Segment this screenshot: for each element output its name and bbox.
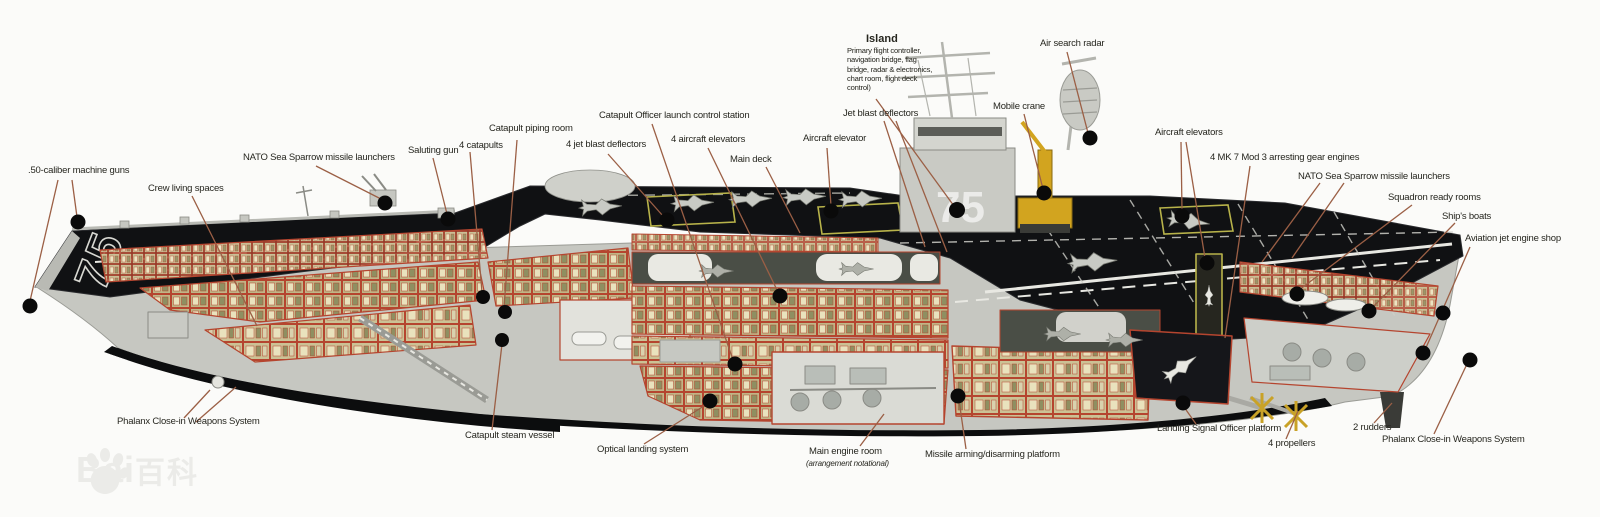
callout-dot	[773, 289, 788, 304]
label-optical-landing-system: Optical landing system	[597, 445, 688, 456]
callout-dot	[1083, 131, 1098, 146]
label-50cal-machine-guns: .50-caliber machine guns	[28, 166, 129, 177]
label-4-aircraft-elevators: 4 aircraft elevators	[671, 135, 745, 146]
label-aircraft-elevator: Aircraft elevator	[803, 134, 866, 145]
label-catapult-steam-vessel: Catapult steam vessel	[465, 431, 554, 442]
carrier-cutaway-art: 75	[0, 0, 1600, 517]
engine-room-art	[772, 352, 944, 424]
callout-dot	[1436, 306, 1451, 321]
label-aviation-jet-engine-shop: Aviation jet engine shop	[1465, 234, 1561, 245]
callout-dot	[23, 299, 38, 314]
baidu-baike-watermark: Bai 百科	[76, 448, 199, 492]
watermark-cjk-text: 百科	[135, 448, 199, 492]
mobile-crane-art	[1018, 122, 1072, 233]
label-phalanx-ciws-right: Phalanx Close-in Weapons System	[1382, 435, 1525, 446]
label-missile-arming-platform: Missile arming/disarming platform	[925, 450, 1060, 461]
callout-dot	[498, 305, 512, 319]
callout-dot	[71, 215, 86, 230]
callout-dot	[441, 212, 456, 227]
baidu-paw-icon	[78, 448, 130, 498]
label-arresting-gear-engines: 4 MK 7 Mod 3 arresting gear engines	[1210, 153, 1359, 164]
callout-dot	[1463, 353, 1478, 368]
callout-dot	[1176, 396, 1191, 411]
callout-dot	[703, 394, 718, 409]
callout-dot	[660, 213, 675, 228]
callout-dot	[378, 196, 393, 211]
label-squadron-ready-rooms: Squadron ready rooms	[1388, 193, 1481, 204]
label-phalanx-ciws-left: Phalanx Close-in Weapons System	[117, 417, 260, 428]
label-4-jet-blast-deflectors: 4 jet blast deflectors	[566, 140, 646, 151]
label-mobile-crane: Mobile crane	[993, 102, 1045, 113]
callout-dot	[1290, 287, 1305, 302]
label-4-propellers: 4 propellers	[1268, 439, 1315, 450]
callout-dot	[476, 290, 490, 304]
callout-dot	[1416, 346, 1431, 361]
callout-dot	[951, 389, 966, 404]
label-nato-sea-sparrow-right: NATO Sea Sparrow missile launchers	[1298, 172, 1450, 183]
label-island-description: Primary flight controller, navigation br…	[847, 46, 957, 92]
label-island: Island	[866, 33, 898, 46]
label-saluting-gun: Saluting gun	[408, 146, 458, 157]
label-main-engine-room: Main engine room	[809, 447, 882, 458]
callout-dot	[1175, 209, 1190, 224]
label-engine-room-note: (arrangement notational)	[806, 459, 889, 468]
label-ships-boats: Ship's boats	[1442, 212, 1491, 223]
label-nato-sea-sparrow-left: NATO Sea Sparrow missile launchers	[243, 153, 395, 164]
callout-dot	[728, 357, 743, 372]
phalanx-dome-art	[212, 376, 224, 388]
callout-dot	[1037, 186, 1052, 201]
callout-dot	[949, 202, 965, 218]
callout-dot	[495, 333, 509, 347]
diagram-canvas: 75	[0, 0, 1600, 517]
label-lso-platform: Landing Signal Officer platform	[1157, 424, 1281, 435]
label-main-deck: Main deck	[730, 155, 772, 166]
label-4-catapults: 4 catapults	[459, 141, 503, 152]
callout-dot	[1200, 256, 1215, 271]
label-jet-blast-deflectors: Jet blast deflectors	[843, 109, 918, 120]
callout-dot	[824, 204, 839, 219]
label-2-rudders: 2 rudders	[1353, 423, 1391, 434]
label-catapult-officer-station: Catapult Officer launch control station	[599, 111, 749, 122]
label-air-search-radar: Air search radar	[1040, 39, 1104, 50]
label-catapult-piping-room: Catapult piping room	[489, 124, 573, 135]
callout-dot	[1362, 304, 1377, 319]
label-crew-living-spaces: Crew living spaces	[148, 184, 224, 195]
label-aircraft-elevators-aft: Aircraft elevators	[1155, 128, 1223, 139]
